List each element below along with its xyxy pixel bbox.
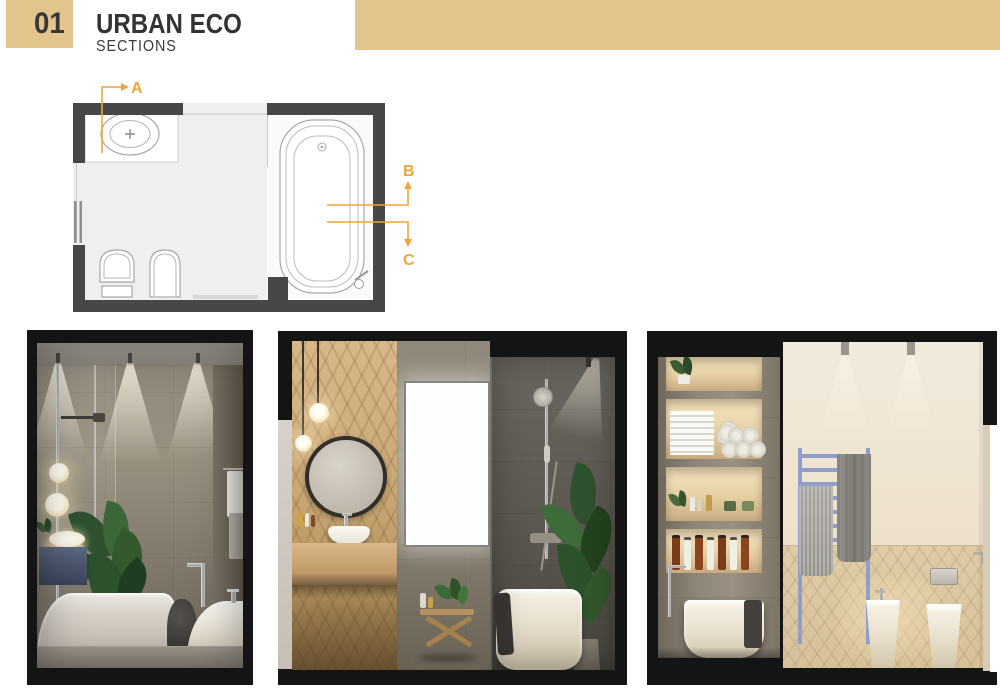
header-accent-bar	[355, 0, 1000, 50]
spotlight-fixture	[907, 342, 915, 355]
pendant-cord	[302, 341, 304, 437]
plant-pot	[678, 375, 690, 384]
shelf-niche	[666, 357, 762, 391]
toilet-lid-line	[928, 606, 960, 610]
photo-vignette	[37, 343, 243, 668]
photo-vignette	[490, 357, 615, 670]
section-b-photo-main	[292, 341, 490, 670]
section-c-photo-niches	[658, 357, 780, 658]
stool-bottle	[420, 593, 426, 608]
towel-roll	[749, 441, 766, 458]
folded-towels	[670, 411, 714, 455]
center-concrete-wall	[397, 341, 490, 670]
cosmetic-bottle	[690, 497, 695, 511]
shelf-niche	[666, 467, 762, 521]
amber-bottle	[741, 535, 749, 570]
amber-bottle	[695, 535, 703, 570]
spotlight-fixture	[841, 342, 849, 355]
vessel-sink	[328, 526, 370, 544]
draped-towel	[837, 454, 871, 562]
vanity-shelf	[292, 543, 397, 585]
pendant-cord	[317, 341, 319, 403]
page-number-badge: 01	[6, 0, 73, 48]
plan-left-door-leaf	[74, 201, 77, 243]
amber-bottle	[718, 535, 726, 570]
page-cutout	[990, 425, 997, 672]
tub-towel	[744, 600, 762, 648]
section-a-render-frame	[27, 330, 253, 685]
cosmetic-bottle	[697, 499, 701, 511]
shelf-niche	[666, 399, 762, 459]
page-subtitle: SECTIONS	[96, 38, 177, 56]
diffuser-bottle	[706, 495, 712, 511]
photo-edge-strip	[983, 425, 990, 671]
stool-shadow	[418, 655, 478, 661]
stool-plant	[435, 579, 471, 609]
plan-bathtub	[280, 120, 368, 293]
white-bottle	[730, 537, 737, 570]
floor-shade	[658, 647, 780, 658]
pendant-globe	[295, 435, 312, 452]
flush-plate	[930, 568, 958, 585]
section-c-render-frame	[647, 331, 997, 685]
succulent-pot	[724, 501, 736, 511]
section-a-photo	[37, 343, 243, 668]
photo-overflow-strip	[278, 420, 292, 669]
presentation-page: { "palette": { "tan": "#E2C48D", "orange…	[0, 0, 1000, 690]
section-label-a: A	[131, 80, 143, 97]
succulent-pot	[742, 501, 754, 511]
section-b-render-frame	[278, 331, 627, 685]
vanity-shadow	[292, 585, 397, 599]
stool-bottle	[428, 597, 433, 608]
light-cone	[817, 355, 873, 445]
section-label-c: C	[403, 252, 415, 269]
stool-seat	[420, 609, 474, 615]
section-b-photo-shower	[490, 357, 615, 670]
light-window	[404, 381, 490, 547]
knit-towel	[799, 486, 833, 576]
plan-tub-faucet	[355, 280, 364, 289]
floor-faucet	[668, 567, 671, 617]
section-c-photo-fixtures	[783, 342, 983, 668]
light-cone	[883, 355, 939, 445]
section-label-b: B	[403, 163, 415, 180]
round-mirror	[305, 436, 387, 518]
plan-toilet	[100, 250, 134, 297]
cosmetic-bottle	[305, 513, 309, 527]
page-title: URBAN ECO	[96, 8, 242, 40]
bidet-tap-spout	[876, 590, 885, 593]
plan-left-door-leaf2	[80, 201, 83, 243]
pendant-globe	[309, 403, 329, 423]
floor-plan: A B C	[60, 75, 440, 320]
plan-bidet	[150, 250, 180, 297]
cosmetic-bottle	[311, 515, 315, 527]
plan-door-mat	[193, 295, 258, 299]
cosmetic-bottle	[298, 511, 303, 527]
white-bottle	[707, 537, 714, 570]
